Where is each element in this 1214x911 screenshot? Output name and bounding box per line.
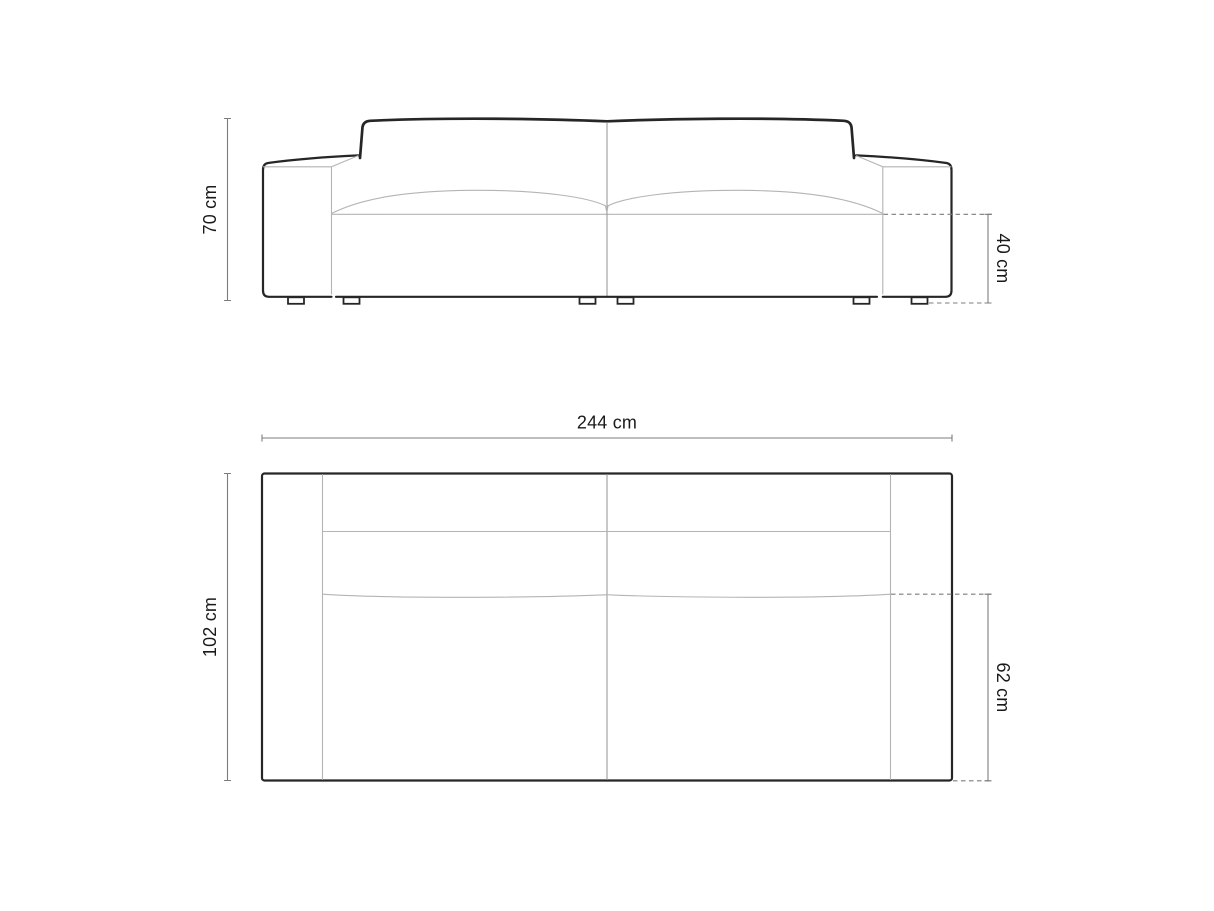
sofa-dimension-diagram-page: 70 cm 40 cm 244 cm (0, 0, 1214, 911)
seat-height-label: 40 cm (993, 233, 1013, 283)
depth-dimension: 102 cm (200, 474, 231, 781)
height-dimension-line (224, 119, 231, 301)
seat-height-dimension: 40 cm (884, 214, 1014, 303)
sofa-feet (288, 297, 928, 304)
top-view: 244 cm 102 cm 62 cm (200, 413, 1013, 781)
height-label: 70 cm (200, 184, 220, 234)
seat-height-dimension-line (985, 214, 992, 303)
width-dimension-line (262, 435, 952, 442)
seat-depth-dimension-line (985, 594, 992, 781)
right-armrest (856, 155, 952, 296)
foot (854, 297, 870, 304)
depth-dimension-line (224, 474, 231, 781)
right-armrest-outline (856, 155, 952, 296)
height-dimension: 70 cm (200, 119, 231, 301)
foot (580, 297, 596, 304)
depth-label: 102 cm (200, 597, 220, 657)
foot (288, 297, 304, 304)
foot (912, 297, 928, 304)
width-dimension: 244 cm (262, 413, 952, 442)
left-armrest-outline (263, 155, 359, 296)
front-view: 70 cm 40 cm (200, 119, 1013, 304)
right-armrest-face-seams (857, 156, 952, 294)
foot (344, 297, 360, 304)
left-armrest-face-seams (264, 156, 359, 294)
sofa-dimension-diagram: 70 cm 40 cm 244 cm (0, 0, 1214, 911)
seat-depth-label: 62 cm (993, 662, 1013, 712)
left-armrest (263, 155, 359, 296)
foot (618, 297, 634, 304)
width-label: 244 cm (577, 413, 637, 433)
